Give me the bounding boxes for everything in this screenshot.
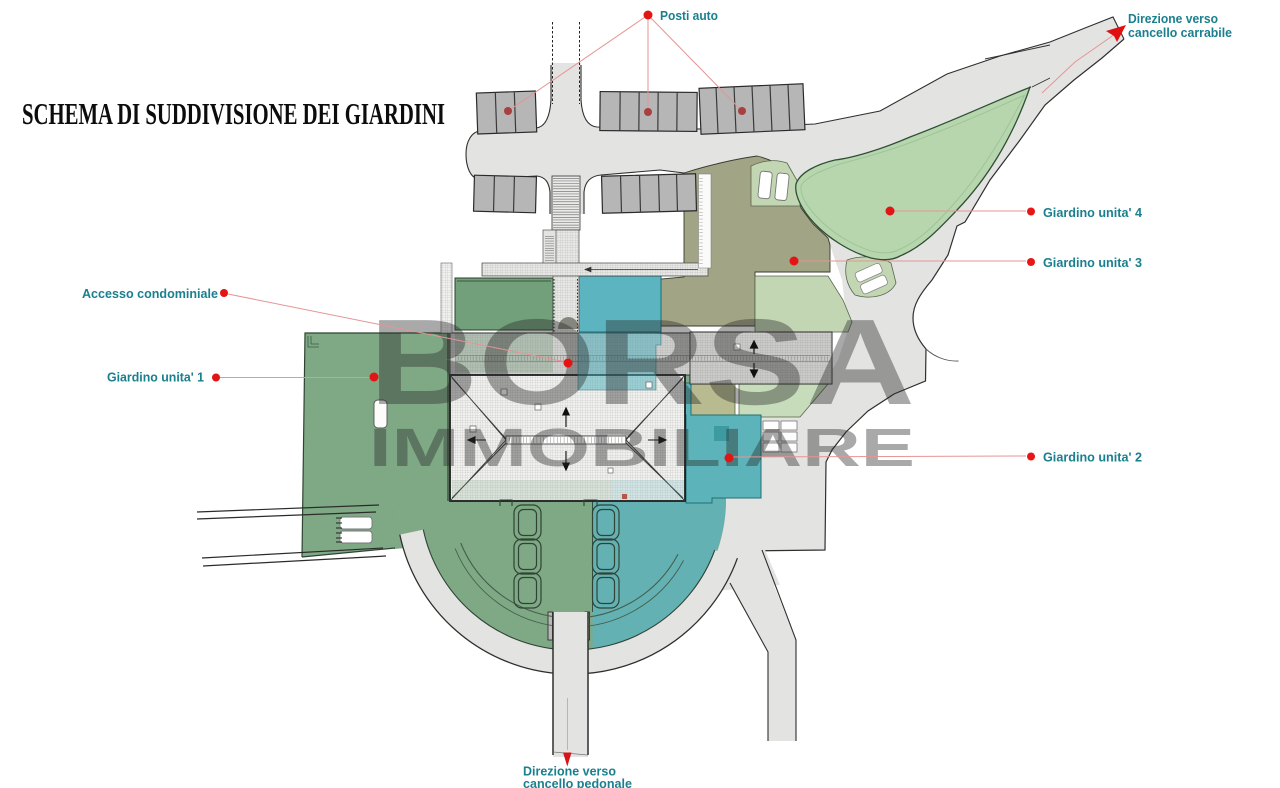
svg-text:IMMOBILIARE: IMMOBILIARE [369, 418, 915, 478]
svg-text:SCHEMA DI SUDDIVISIONE DEI GIA: SCHEMA DI SUDDIVISIONE DEI GIARDINI [22, 97, 445, 131]
svg-text:Posti auto: Posti auto [660, 8, 718, 23]
svg-text:cancello carrabile: cancello carrabile [1128, 25, 1232, 40]
svg-text:BORSA: BORSA [369, 294, 915, 430]
svg-text:Direzione verso: Direzione verso [1128, 11, 1218, 26]
svg-text:Accesso condominiale: Accesso condominiale [82, 286, 218, 301]
svg-text:Giardino unita' 1: Giardino unita' 1 [107, 370, 204, 385]
svg-text:cancello pedonale: cancello pedonale [523, 776, 632, 788]
svg-text:Giardino unita' 3: Giardino unita' 3 [1043, 255, 1142, 270]
svg-text:Giardino unita' 2: Giardino unita' 2 [1043, 450, 1142, 465]
svg-text:Giardino unita' 4: Giardino unita' 4 [1043, 205, 1143, 220]
